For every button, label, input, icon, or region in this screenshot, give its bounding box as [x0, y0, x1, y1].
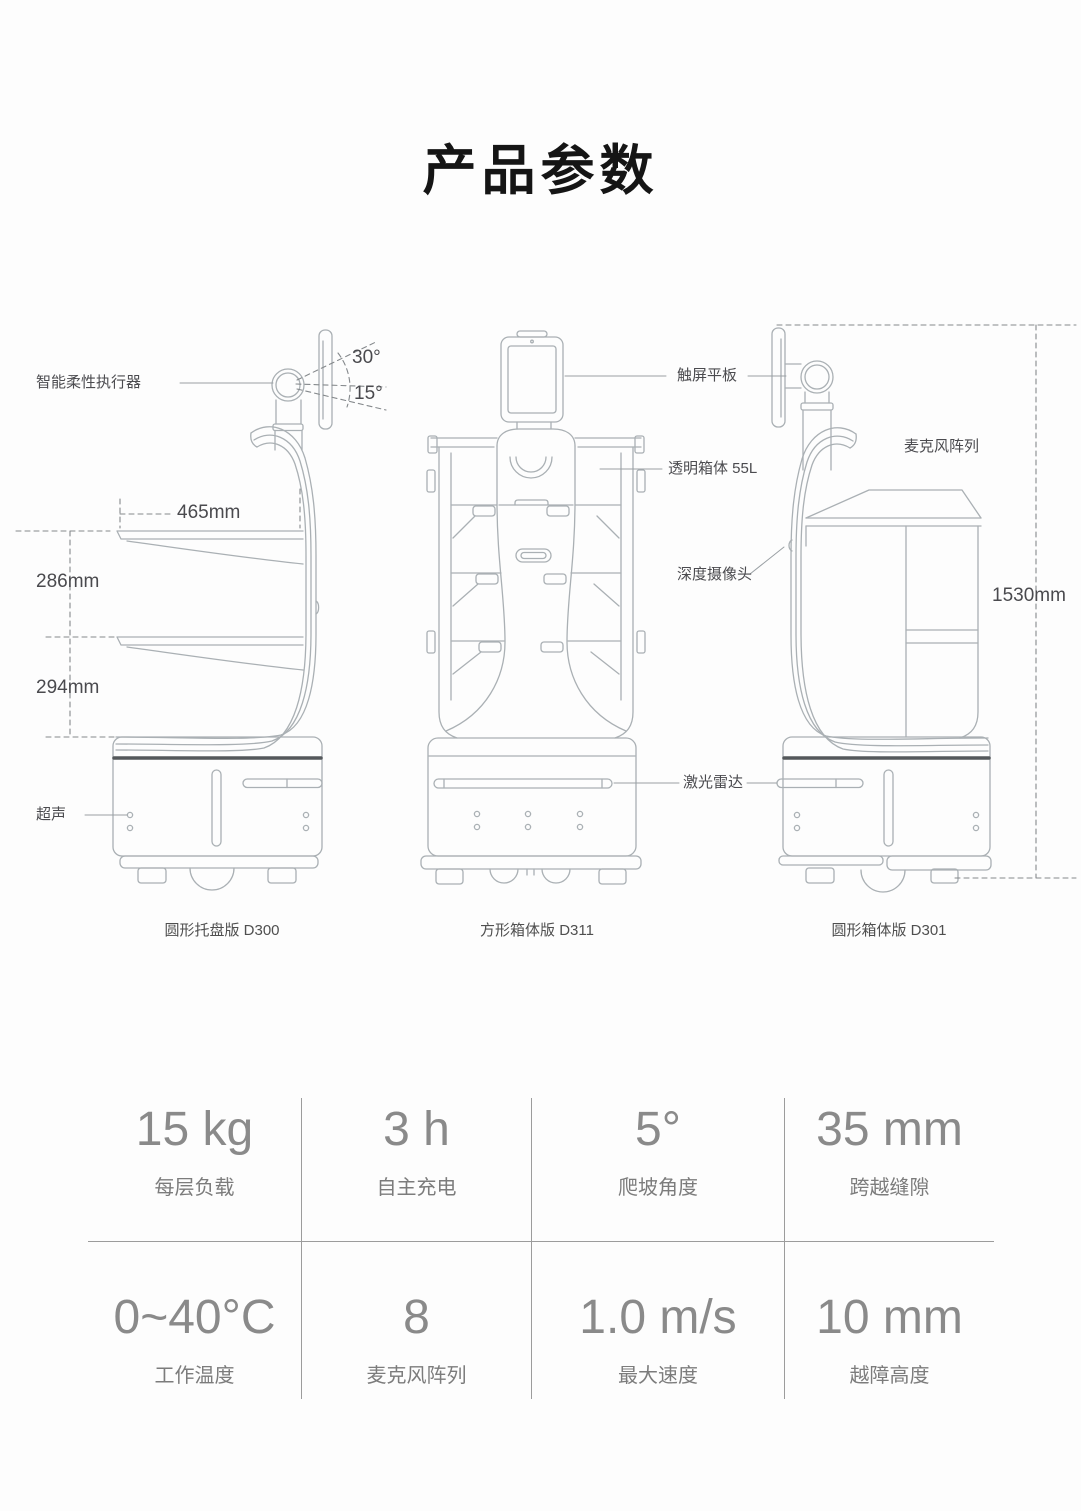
spec-temperature-value: 0~40°C — [88, 1292, 301, 1344]
specs-row-2: 0~40°C 工作温度 8 麦克风阵列 1.0 m/s 最大速度 10 mm 越… — [88, 1242, 994, 1399]
spec-charging: 3 h 自主充电 — [302, 1098, 532, 1241]
dim-lower-tray-spacing: 294mm — [36, 678, 99, 698]
specs-row-1: 15 kg 每层负载 3 h 自主充电 5° 爬坡角度 35 mm 跨越缝隙 — [88, 1098, 994, 1242]
spec-climb-angle: 5° 爬坡角度 — [532, 1098, 785, 1241]
spec-obstacle-height: 10 mm 越障高度 — [785, 1242, 994, 1399]
specs-grid: 15 kg 每层负载 3 h 自主充电 5° 爬坡角度 35 mm 跨越缝隙 0… — [88, 1098, 994, 1399]
spec-obstacle-height-label: 越障高度 — [785, 1359, 994, 1388]
robot-line-drawings-svg — [0, 0, 1081, 960]
spec-charging-value: 3 h — [302, 1104, 531, 1156]
caption-d301: 圆形箱体版 D301 — [831, 919, 946, 940]
spec-mic-array: 8 麦克风阵列 — [302, 1242, 532, 1399]
callout-lines — [85, 376, 786, 815]
callout-depth-camera-label: 深度摄像头 — [677, 567, 752, 584]
spec-charging-label: 自主充电 — [302, 1171, 531, 1200]
spec-max-speed-label: 最大速度 — [532, 1359, 784, 1388]
spec-temperature: 0~40°C 工作温度 — [88, 1242, 302, 1399]
spec-gap-crossing-label: 跨越缝隙 — [785, 1171, 994, 1200]
product-spec-page: 产品参数 — [0, 0, 1081, 1511]
spec-mic-array-value: 8 — [302, 1292, 531, 1344]
product-diagrams: 智能柔性执行器 超声 触屏平板 透明箱体 55L 深度摄像头 激光雷达 麦克风阵… — [0, 0, 1081, 960]
robot-d300-drawing — [113, 330, 332, 890]
dim-tray-width: 465mm — [177, 503, 240, 523]
callout-mic-array-label: 麦克风阵列 — [904, 439, 979, 456]
spec-gap-crossing-value: 35 mm — [785, 1104, 994, 1156]
spec-load-value: 15 kg — [88, 1104, 301, 1156]
spec-mic-array-label: 麦克风阵列 — [302, 1359, 531, 1388]
spec-gap-crossing: 35 mm 跨越缝隙 — [785, 1098, 994, 1241]
callout-transparent-box-label: 透明箱体 55L — [668, 461, 757, 478]
callout-lidar-label: 激光雷达 — [683, 775, 743, 792]
spec-max-speed-value: 1.0 m/s — [532, 1292, 784, 1344]
caption-d300: 圆形托盘版 D300 — [164, 919, 279, 940]
spec-climb-angle-value: 5° — [532, 1104, 784, 1156]
spec-temperature-label: 工作温度 — [88, 1359, 301, 1388]
spec-load-label: 每层负载 — [88, 1171, 301, 1200]
spec-obstacle-height-value: 10 mm — [785, 1292, 994, 1344]
callout-touchscreen-label: 触屏平板 — [677, 368, 737, 385]
dim-screen-tilt-down: 15° — [354, 384, 383, 404]
dim-upper-tray-spacing: 286mm — [36, 572, 99, 592]
spec-climb-angle-label: 爬坡角度 — [532, 1171, 784, 1200]
callout-actuator-label: 智能柔性执行器 — [36, 375, 141, 392]
caption-d311: 方形箱体版 D311 — [480, 919, 594, 940]
callout-ultrasonic-label: 超声 — [36, 807, 66, 824]
spec-load: 15 kg 每层负载 — [88, 1098, 302, 1241]
spec-max-speed: 1.0 m/s 最大速度 — [532, 1242, 785, 1399]
dimension-lines — [16, 325, 1076, 878]
robot-d301-drawing — [772, 328, 991, 892]
dim-total-height: 1530mm — [992, 586, 1066, 606]
dim-screen-tilt-up: 30° — [352, 348, 381, 368]
robot-d311-drawing — [421, 331, 645, 884]
